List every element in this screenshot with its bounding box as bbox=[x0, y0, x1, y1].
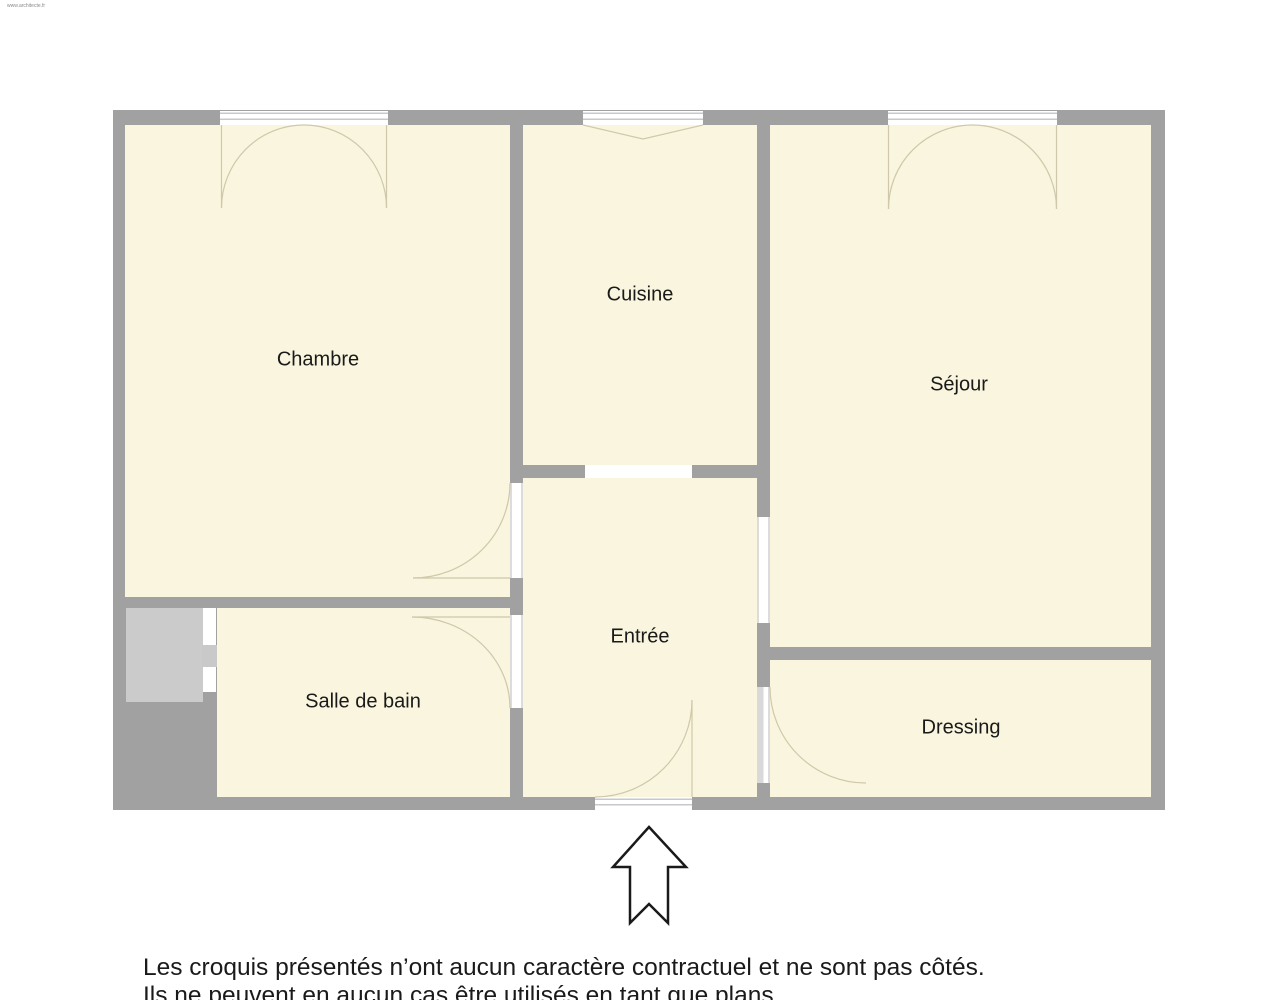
shaft-hatch-segment bbox=[203, 608, 216, 645]
shaft-hatch-segment bbox=[202, 645, 217, 667]
passage-cuisine-entree bbox=[585, 465, 692, 478]
disclaimer-line-2: Ils ne peuvent en aucun cas être utilisé… bbox=[143, 982, 985, 1000]
room-label-entree: Entrée bbox=[611, 626, 670, 649]
room-label-chambre: Chambre bbox=[277, 349, 359, 372]
floorplan-page: www.architecte.fr bbox=[0, 0, 1277, 1000]
window-chambre bbox=[220, 111, 388, 125]
room-label-cuisine: Cuisine bbox=[607, 284, 674, 307]
technical-shaft bbox=[126, 608, 203, 702]
door-opening-chambre bbox=[510, 483, 523, 578]
door-opening-salle-de-bain bbox=[510, 615, 523, 708]
window-sejour bbox=[888, 111, 1057, 125]
entrance-arrow-icon bbox=[613, 827, 686, 923]
watermark-url: www.architecte.fr bbox=[7, 3, 45, 9]
disclaimer-line-1: Les croquis présentés n’ont aucun caract… bbox=[143, 954, 985, 982]
door-opening-dressing bbox=[757, 687, 770, 783]
disclaimer-text: Les croquis présentés n’ont aucun caract… bbox=[143, 954, 985, 1000]
room-label-salle-de-bain: Salle de bain bbox=[305, 691, 421, 714]
passage-entree-sejour bbox=[757, 517, 770, 623]
shaft-hatch-segment bbox=[203, 667, 216, 692]
room-label-sejour: Séjour bbox=[930, 374, 988, 397]
room-label-dressing: Dressing bbox=[922, 717, 1001, 740]
window-cuisine bbox=[583, 111, 703, 125]
entrance-door-threshold bbox=[595, 797, 692, 810]
